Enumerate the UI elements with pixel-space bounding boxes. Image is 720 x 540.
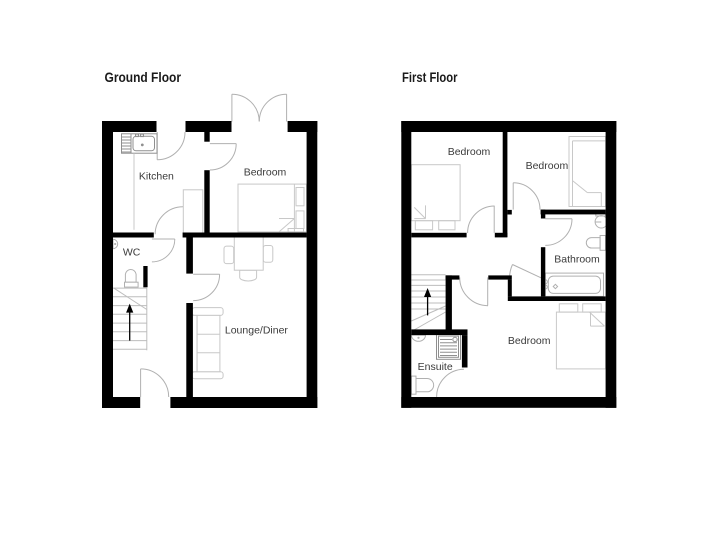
svg-text:Ensuite: Ensuite xyxy=(418,361,453,373)
svg-text:Bedroom: Bedroom xyxy=(508,335,551,347)
svg-text:Kitchen: Kitchen xyxy=(139,170,174,182)
svg-text:First Floor: First Floor xyxy=(402,69,458,85)
svg-text:Ground Floor: Ground Floor xyxy=(105,69,182,85)
svg-text:WC: WC xyxy=(123,247,141,259)
svg-text:Bedroom: Bedroom xyxy=(526,160,569,172)
svg-text:Bedroom: Bedroom xyxy=(448,146,491,158)
svg-text:Bathroom: Bathroom xyxy=(554,254,600,266)
svg-text:Bedroom: Bedroom xyxy=(244,167,287,179)
svg-text:Lounge/Diner: Lounge/Diner xyxy=(225,324,289,336)
